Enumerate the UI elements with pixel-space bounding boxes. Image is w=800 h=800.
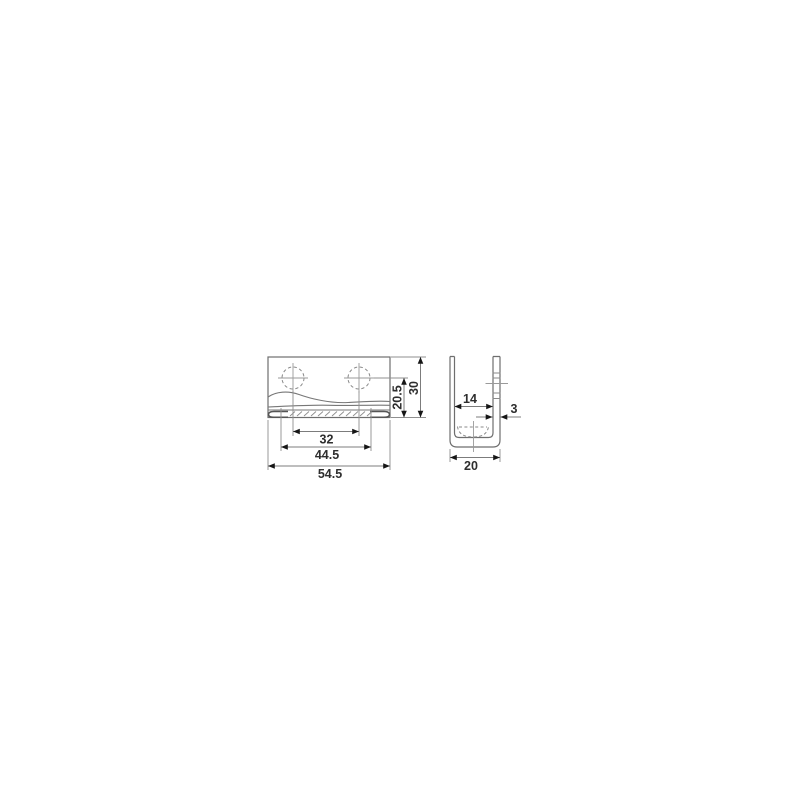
hole-left [278,363,308,393]
front-extension-lines [268,357,426,470]
bend-line-lower [268,405,390,407]
flange-tab-left [269,412,289,418]
front-view: 32 44.5 54.5 20.5 30 [268,357,426,481]
dim-flange-width-label: 44.5 [315,448,339,462]
hole-right [344,363,374,393]
dim-hole-spacing-label: 32 [320,433,334,447]
dim-overall-height-label: 30 [407,381,421,395]
dim-flange-width: 44.5 [281,447,371,462]
dim-hole-height-label: 20.5 [391,385,405,409]
hole-left-centerlines [278,363,308,393]
dim-wall-thickness-label: 3 [511,402,518,416]
dim-hole-spacing: 32 [293,432,359,447]
flange-tab-right [370,412,390,418]
bottom-trough-dashed-arc [458,427,489,438]
flange-hatch [290,412,372,417]
dim-inner-width-label: 14 [463,392,477,406]
dim-overall-width: 54.5 [268,466,390,481]
dim-hole-height: 20.5 [391,378,405,418]
dim-inner-width: 14 [455,392,494,407]
technical-drawing: 32 44.5 54.5 20.5 30 [0,0,800,800]
dim-overall-width-label: 54.5 [318,467,342,481]
dim-wall-thickness: 3 [476,402,521,417]
dim-overall-height: 30 [407,357,421,418]
dim-outer-width: 20 [450,458,500,474]
bend-line-upper [268,392,390,403]
hole-right-centerlines [344,363,374,393]
side-view: 14 3 20 [450,357,521,474]
drawing-canvas: 32 44.5 54.5 20.5 30 [0,0,800,800]
dim-outer-width-label: 20 [464,459,478,473]
hole-hidden-lines [493,373,501,399]
